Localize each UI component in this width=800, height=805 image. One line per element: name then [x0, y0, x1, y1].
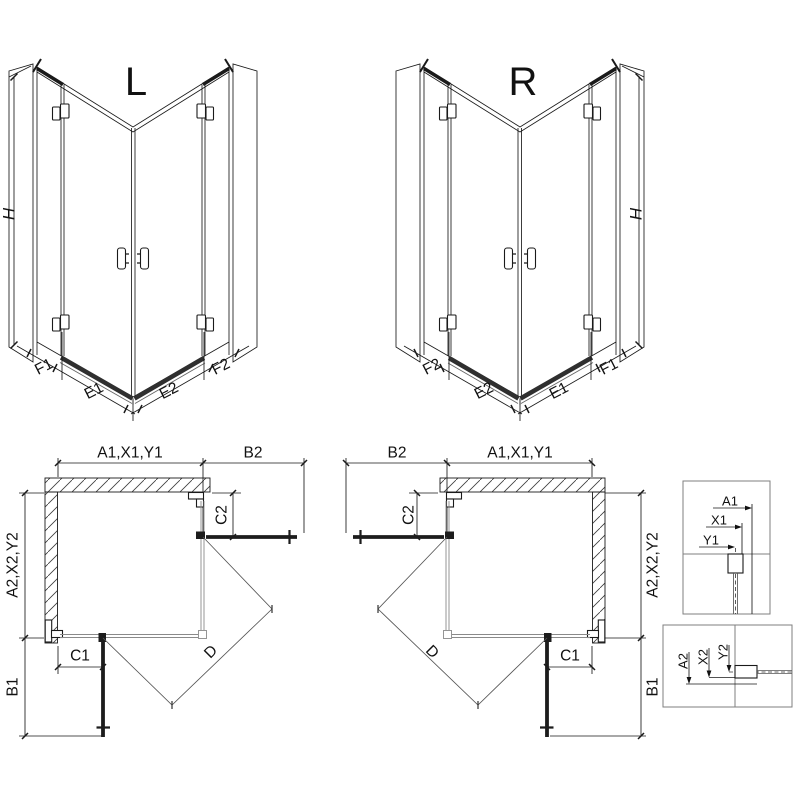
iso-right-title: R	[509, 60, 538, 104]
detail-width-x1-label: X1	[711, 513, 727, 528]
plan-view-left: A1,X1,Y1 B2 A2,X2,Y2 B1 C2 C1 D	[5, 445, 308, 740]
iso-view-left: L H F1 E1 E2 F2	[0, 59, 257, 421]
detail-depth-profile	[735, 666, 757, 679]
detail-depth-a2-label: A2	[676, 653, 691, 669]
plan-right-width-label: A1,X1,Y1	[487, 445, 553, 462]
detail-width-profile	[728, 554, 743, 573]
detail-depth-x2-label: X2	[696, 649, 711, 665]
shower-enclosure-diagram: L H F1 E1 E2 F2 R H F2 E2 E1 F1 A1,X1,Y1…	[0, 0, 800, 800]
plan-left-geometry	[45, 458, 307, 737]
detail-width-a1-label: A1	[722, 494, 738, 509]
plan-right-depth-label: A2,X2,Y2	[645, 532, 662, 598]
plan-view-right: B2 A1,X1,Y1 A2,X2,Y2 B1 C2 C1 D	[343, 445, 662, 740]
plan-right-geometry	[343, 458, 605, 737]
detail-depth-y2-label: Y2	[716, 644, 731, 660]
plan-left-top-wall	[45, 478, 210, 492]
detail-width-arrowheads	[728, 506, 752, 550]
iso-left-dim-f1: F1	[32, 355, 56, 378]
iso-right-dim-f1: F1	[597, 355, 621, 378]
plan-right-entry-label: D	[422, 642, 442, 662]
plan-right-door-depth-label: B1	[645, 678, 662, 697]
iso-view-right: R H F2 E2 E1 F1	[396, 59, 646, 421]
detail-width-panel: A1 X1 Y1	[683, 481, 770, 614]
plan-left-fixed-bottom-label: C1	[70, 648, 90, 665]
plan-left-depth-label: A2,X2,Y2	[5, 532, 22, 598]
plan-right-fixed-side-label: C2	[401, 505, 418, 525]
plan-right-fixed-bottom-label: C1	[560, 648, 580, 665]
technical-drawing-page: L H F1 E1 E2 F2 R H F2 E2 E1 F1 A1,X1,Y1…	[0, 0, 800, 800]
iso-left-height-label: H	[0, 207, 19, 220]
iso-right-dim-f2: F2	[420, 355, 444, 378]
plan-left-door-width-label: B2	[244, 445, 263, 462]
detail-depth-panel: A2 X2 Y2	[663, 625, 792, 707]
plan-left-depth-dim-lines	[19, 493, 102, 736]
plan-left-fixed-side-label: C2	[214, 505, 231, 525]
iso-left-title: L	[125, 60, 147, 104]
plan-left-entry-label: D	[201, 642, 221, 662]
iso-left-dim-f2: F2	[209, 355, 233, 378]
plan-left-door-depth-label: B1	[5, 678, 22, 697]
iso-right-height-label: H	[627, 207, 646, 220]
plan-left-width-label: A1,X1,Y1	[97, 445, 163, 462]
plan-right-top-wall	[440, 478, 605, 492]
plan-right-door-width-label: B2	[388, 445, 407, 462]
detail-width-y1-label: Y1	[703, 533, 719, 548]
